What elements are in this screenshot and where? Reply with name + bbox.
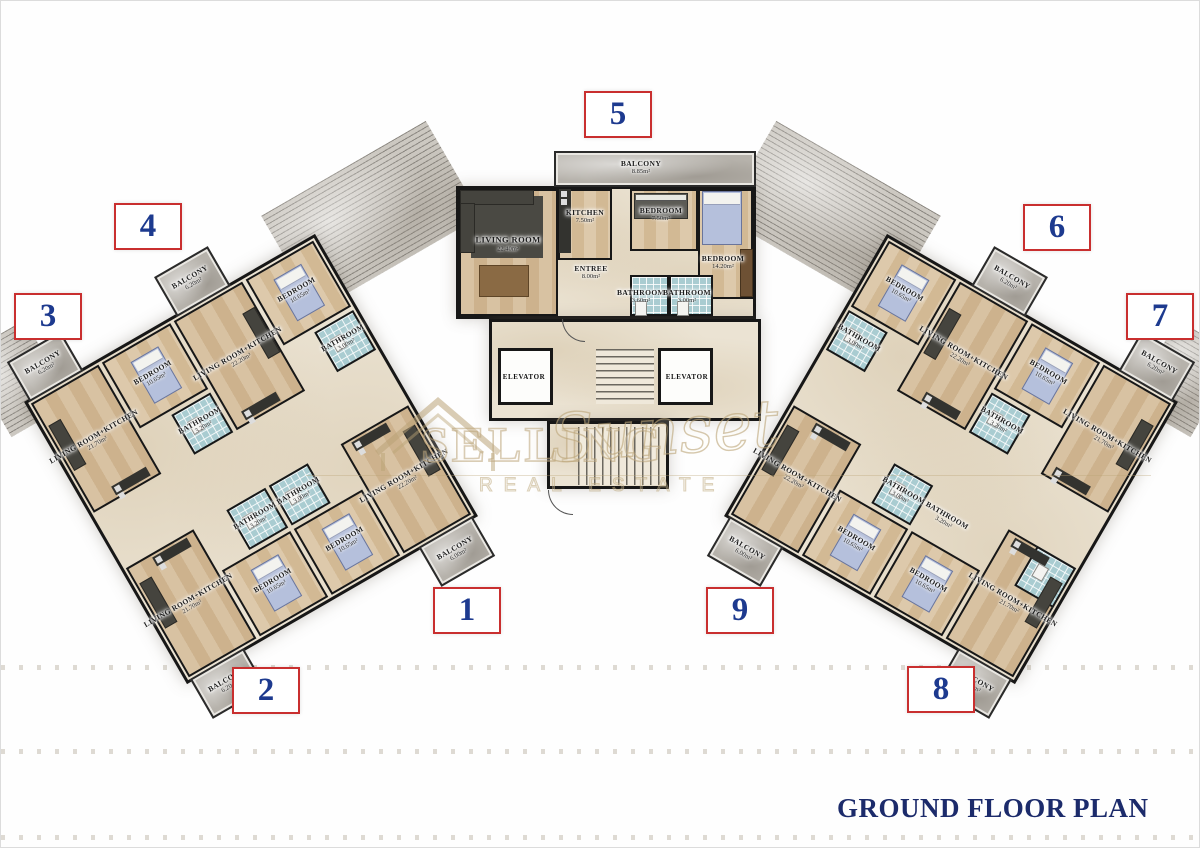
elevator-right [658, 348, 713, 405]
door-arc [548, 490, 573, 515]
background-pattern-band [1, 835, 1200, 840]
stair-elevator-core [489, 319, 761, 421]
unit-badge-8: 8 [907, 666, 975, 713]
elevator-left [498, 348, 553, 405]
staircase-upper [596, 349, 654, 404]
staircase-lower [578, 427, 666, 485]
unit-badge-3: 3 [14, 293, 82, 340]
unit-badge-4: 4 [114, 203, 182, 250]
unit-badge-7: 7 [1126, 293, 1194, 340]
rug [471, 196, 543, 258]
bed [702, 191, 742, 245]
unit-badge-6: 6 [1023, 204, 1091, 251]
bed [634, 193, 688, 219]
apartment-5-balcony [554, 151, 756, 187]
unit-badge-5: 5 [584, 91, 652, 138]
sofa [460, 203, 475, 253]
core-lower-hall [547, 421, 669, 489]
apartment-5-bathroom-2 [669, 275, 713, 316]
unit-badge-1: 1 [433, 587, 501, 634]
dining-table [479, 265, 529, 297]
left-wing: BALCONY6.20m² BALCONY6.20m² LIVING ROOM+… [24, 234, 478, 684]
toilet [635, 301, 647, 316]
page-title: GROUND FLOOR PLAN [837, 793, 1149, 824]
background-pattern-band [1, 749, 1200, 754]
kitchen-counter [559, 189, 571, 253]
wardrobe [740, 249, 753, 297]
right-wing: BALCONY6.20m² BALCONY6.20m² BEDROOM10.65… [724, 234, 1178, 684]
ground-floor-plan: BALCONY6.20m² BALCONY6.20m² LIVING ROOM+… [0, 0, 1200, 848]
unit-badge-2: 2 [232, 667, 300, 714]
unit-badge-9: 9 [706, 587, 774, 634]
toilet [677, 301, 689, 316]
room-label: BATHROOM3.20m² [920, 500, 969, 538]
